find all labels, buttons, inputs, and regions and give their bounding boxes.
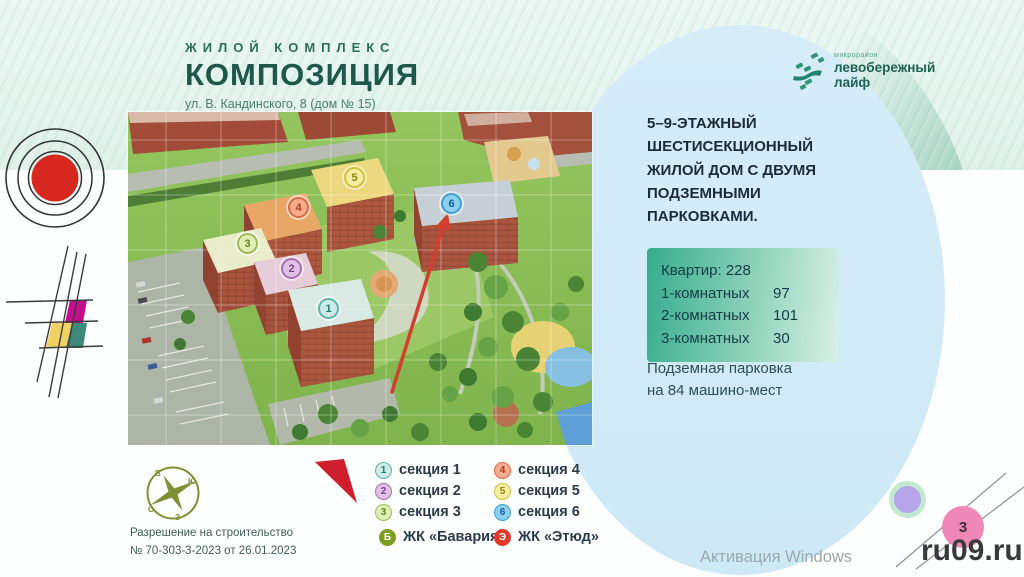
svg-text:З: З [175, 513, 180, 522]
legend-section-6: 6 секция 6 [494, 502, 580, 522]
aerial-masterplan-photo: 1 2 3 4 5 6 [128, 112, 592, 445]
stat-row-1room: 1-комнатных 97 [661, 283, 827, 306]
legend-section-1: 1 секция 1 [375, 460, 461, 480]
apartments-total: Квартир: 228 [661, 260, 827, 283]
svg-text:В: В [155, 469, 161, 478]
section-5-dot: 5 [494, 483, 511, 500]
compass-icon: В Ю С З [144, 464, 202, 522]
site-watermark: ru09.ru [921, 534, 1023, 568]
construction-permit: Разрешение на строительство № 70-303-3-2… [130, 525, 296, 561]
bavaria-dot: Б [379, 529, 396, 546]
section-3-dot: 3 [375, 504, 392, 521]
windows-activation-watermark: Активация Windows [700, 548, 852, 567]
logo-line2: лайф [834, 76, 935, 90]
section-4-dot: 4 [494, 462, 511, 479]
section-marker-2: 2 [281, 258, 302, 279]
district-logo: микрорайон левобережный лайф [792, 52, 935, 90]
legend-section-3: 3 секция 3 [375, 502, 461, 522]
etude-dot: Э [494, 529, 511, 546]
legend-section-2: 2 секция 2 [375, 481, 461, 501]
presentation-slide: ЖИЛОЙ КОМПЛЕКС КОМПОЗИЦИЯ ул. В. Кандинс… [0, 0, 1024, 577]
purple-dot-decoration [889, 481, 926, 518]
svg-text:С: С [148, 505, 154, 514]
svg-text:Ю: Ю [188, 477, 196, 486]
kandinsky-lines-art [0, 240, 110, 405]
legend-section-4: 4 секция 4 [494, 460, 580, 480]
underground-parking-note: Подземная парковка на 84 машино-мест [647, 358, 792, 402]
logo-line1: левобережный [834, 61, 935, 75]
legend-complex-bavaria: Б ЖК «Бавария» [379, 527, 507, 547]
masterplan-render [128, 112, 592, 445]
stat-row-3room: 3-комнатных 30 [661, 328, 827, 351]
logo-district-label: микрорайон [834, 52, 935, 59]
section-marker-5: 5 [344, 167, 365, 188]
header: ЖИЛОЙ КОМПЛЕКС КОМПОЗИЦИЯ ул. В. Кандинс… [185, 40, 419, 111]
legend-complex-etude: Э ЖК «Этюд» [494, 527, 599, 547]
section-marker-6: 6 [441, 193, 462, 214]
section-6-dot: 6 [494, 504, 511, 521]
legend-section-5: 5 секция 5 [494, 481, 580, 501]
logo-stripes-icon [792, 52, 826, 90]
red-wedge-shape [308, 455, 363, 510]
section-2-dot: 2 [375, 483, 392, 500]
complex-type-label: ЖИЛОЙ КОМПЛЕКС [185, 40, 419, 55]
apartments-stats-box: Квартир: 228 1-комнатных 97 2-комнатных … [647, 248, 839, 362]
complex-address: ул. В. Кандинского, 8 (дом № 15) [185, 97, 419, 111]
stat-row-2room: 2-комнатных 101 [661, 305, 827, 328]
kandinsky-circles-art [3, 126, 107, 230]
section-marker-1: 1 [318, 298, 339, 319]
section-1-dot: 1 [375, 462, 392, 479]
section-marker-4: 4 [288, 197, 309, 218]
building-headline: 5–9-ЭТАЖНЫЙ ШЕСТИСЕКЦИОННЫЙ ЖИЛОЙ ДОМ С … [647, 112, 865, 228]
section-marker-3: 3 [237, 233, 258, 254]
complex-name: КОМПОЗИЦИЯ [185, 57, 419, 93]
